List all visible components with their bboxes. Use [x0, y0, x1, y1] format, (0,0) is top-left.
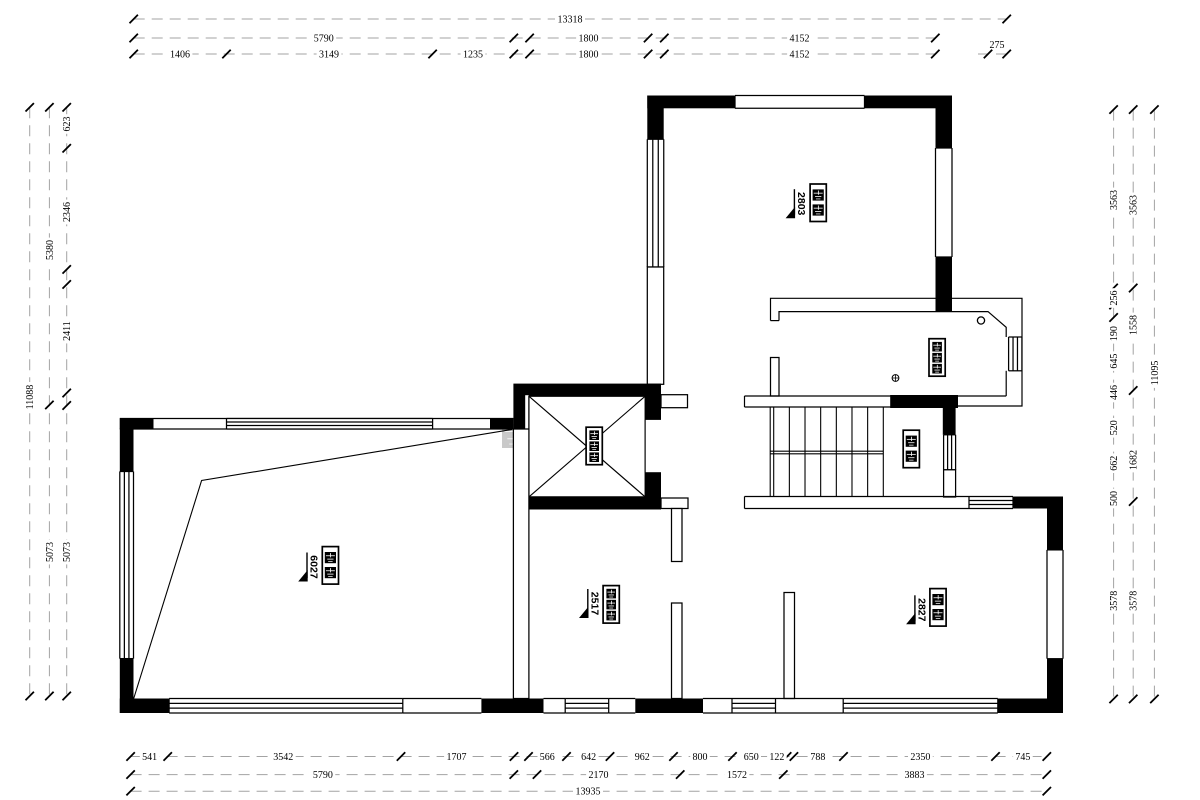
svg-text:446: 446 — [1109, 385, 1120, 400]
svg-text:3883: 3883 — [905, 770, 925, 781]
svg-text:2803: 2803 — [795, 192, 807, 216]
svg-text:745: 745 — [1015, 752, 1030, 763]
svg-text:256: 256 — [1109, 291, 1120, 306]
svg-text:645: 645 — [1109, 354, 1120, 369]
svg-text:662: 662 — [1109, 456, 1120, 471]
svg-text:642: 642 — [581, 752, 596, 763]
svg-text:788: 788 — [810, 752, 825, 763]
svg-text:1800: 1800 — [579, 49, 599, 60]
svg-text:11088: 11088 — [25, 385, 36, 410]
svg-text:13318: 13318 — [558, 14, 583, 25]
svg-text:4152: 4152 — [790, 49, 810, 60]
svg-text:5790: 5790 — [313, 770, 333, 781]
svg-text:800: 800 — [693, 752, 708, 763]
svg-text:1707: 1707 — [447, 752, 467, 763]
svg-text:566: 566 — [540, 752, 555, 763]
svg-text:1800: 1800 — [579, 33, 599, 44]
svg-text:623: 623 — [62, 117, 73, 132]
svg-text:13935: 13935 — [576, 787, 601, 798]
svg-text:2346: 2346 — [62, 202, 73, 222]
svg-text:3563: 3563 — [1109, 190, 1120, 210]
svg-text:1235: 1235 — [463, 49, 483, 60]
svg-text:1572: 1572 — [727, 770, 747, 781]
svg-text:5790: 5790 — [314, 33, 334, 44]
svg-text:275: 275 — [990, 40, 1005, 51]
svg-text:3578: 3578 — [1129, 591, 1140, 611]
svg-text:2827: 2827 — [916, 598, 928, 622]
svg-text:962: 962 — [635, 752, 650, 763]
svg-text:11095: 11095 — [1150, 361, 1161, 386]
svg-text:4152: 4152 — [790, 33, 810, 44]
svg-text:1682: 1682 — [1129, 450, 1140, 470]
svg-text:650: 650 — [744, 752, 759, 763]
svg-text:541: 541 — [142, 752, 157, 763]
svg-text:3542: 3542 — [273, 752, 293, 763]
svg-text:3149: 3149 — [319, 49, 339, 60]
svg-text:1406: 1406 — [170, 49, 190, 60]
svg-text:1558: 1558 — [1129, 315, 1140, 335]
svg-text:122: 122 — [769, 752, 784, 763]
svg-text:5073: 5073 — [62, 542, 73, 562]
svg-text:520: 520 — [1109, 420, 1120, 435]
svg-text:2411: 2411 — [62, 321, 73, 341]
svg-text:2350: 2350 — [910, 752, 930, 763]
svg-text:3563: 3563 — [1129, 195, 1140, 215]
svg-text:2517: 2517 — [589, 592, 601, 616]
svg-text:6027: 6027 — [308, 555, 320, 579]
svg-text:5073: 5073 — [45, 542, 56, 562]
svg-text:2170: 2170 — [589, 770, 609, 781]
svg-text:5380: 5380 — [45, 240, 56, 260]
svg-text:190: 190 — [1109, 326, 1120, 341]
svg-text:3578: 3578 — [1109, 591, 1120, 611]
svg-text:500: 500 — [1109, 491, 1120, 506]
